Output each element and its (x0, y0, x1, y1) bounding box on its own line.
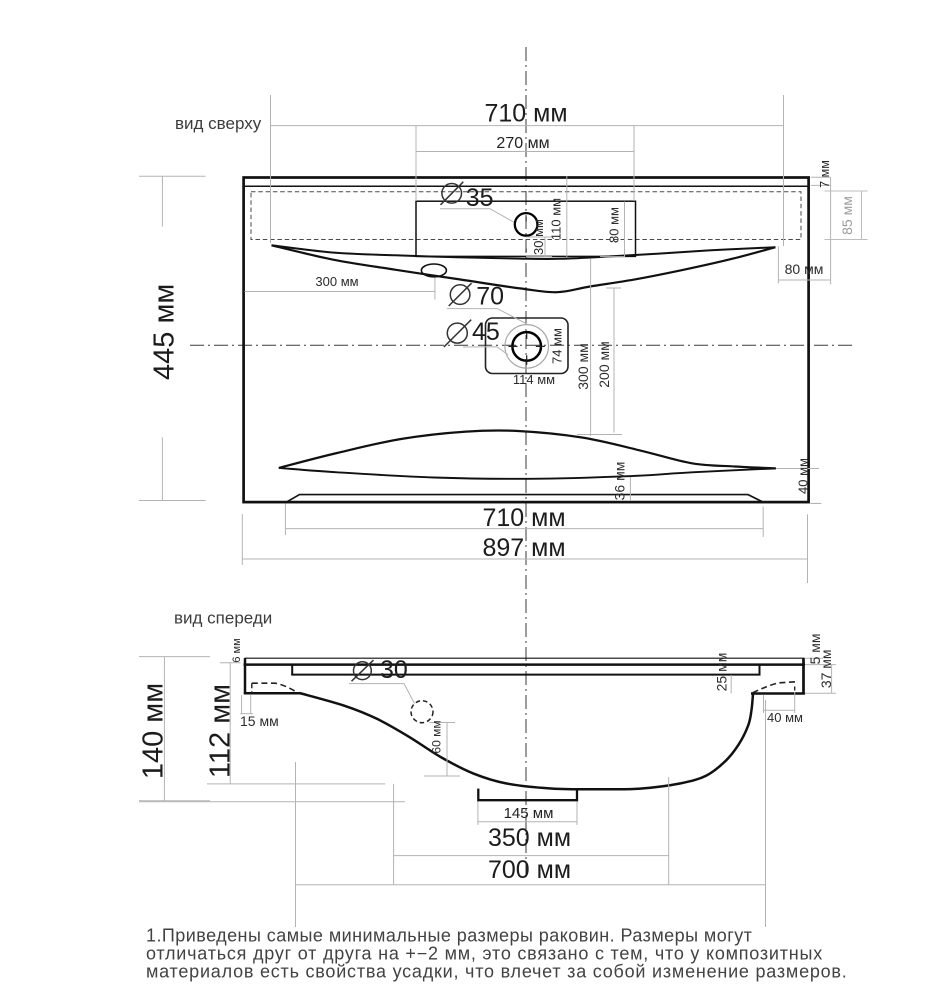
svg-text:отличаться друг от друга на +−: отличаться друг от друга на +−2 мм, это … (146, 944, 823, 964)
svg-text:145 мм: 145 мм (504, 805, 554, 822)
svg-text:897 мм: 897 мм (482, 534, 565, 562)
svg-text:80 мм: 80 мм (785, 261, 824, 277)
svg-text:300 мм: 300 мм (575, 343, 591, 390)
svg-text:74 мм: 74 мм (549, 328, 564, 364)
svg-text:30: 30 (380, 656, 408, 684)
svg-text:300 мм: 300 мм (315, 274, 358, 289)
svg-text:114 мм: 114 мм (513, 372, 555, 387)
svg-text:270 мм: 270 мм (496, 135, 549, 152)
svg-text:45: 45 (472, 318, 500, 346)
svg-text:40 мм: 40 мм (795, 458, 810, 494)
svg-text:200 мм: 200 мм (596, 341, 612, 388)
svg-text:25 мм: 25 мм (714, 653, 730, 692)
svg-text:700 мм: 700 мм (488, 856, 571, 884)
svg-text:материалов есть свойства усадк: материалов есть свойства усадки, что вле… (146, 962, 848, 982)
svg-text:140 мм: 140 мм (138, 683, 170, 779)
svg-text:445 мм: 445 мм (149, 284, 181, 380)
svg-text:1.Приведены самые минимальные: 1.Приведены самые минимальные размеры ра… (146, 926, 752, 946)
svg-text:6 мм: 6 мм (231, 638, 243, 662)
svg-text:36 мм: 36 мм (612, 462, 628, 501)
svg-text:35: 35 (466, 184, 494, 212)
svg-text:350 мм: 350 мм (488, 824, 571, 852)
svg-text:710 мм: 710 мм (482, 504, 565, 532)
svg-text:вид спереди: вид спереди (174, 609, 272, 628)
svg-text:15 мм: 15 мм (240, 713, 279, 729)
svg-text:85 мм: 85 мм (839, 196, 855, 235)
svg-text:30 мм: 30 мм (531, 219, 546, 255)
svg-text:710 мм: 710 мм (484, 100, 567, 128)
svg-text:вид сверху: вид сверху (175, 114, 262, 133)
svg-text:110 мм: 110 мм (548, 198, 563, 240)
svg-text:7 мм: 7 мм (818, 160, 832, 188)
svg-text:60 мм: 60 мм (430, 720, 444, 753)
svg-text:112 мм: 112 мм (205, 684, 237, 778)
svg-text:37 мм: 37 мм (818, 649, 834, 688)
svg-text:70: 70 (476, 282, 504, 310)
svg-text:40 мм: 40 мм (767, 710, 803, 725)
svg-text:80 мм: 80 мм (606, 207, 621, 243)
